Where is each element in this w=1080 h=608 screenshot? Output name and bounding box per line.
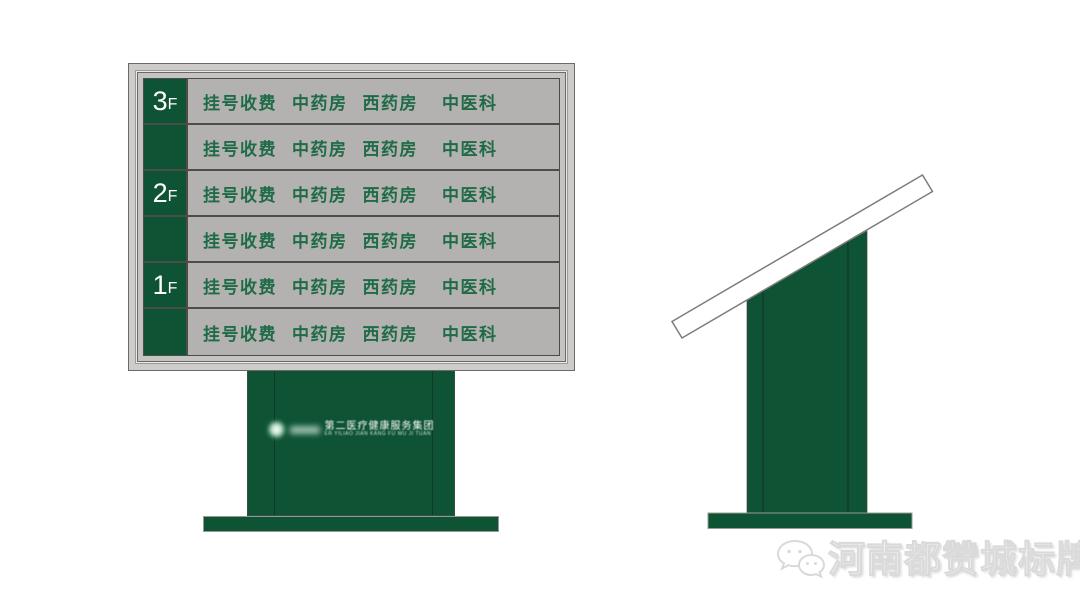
directory-row: 3F挂号收费中药房西药房中医科	[144, 79, 559, 125]
floor-number: 1	[153, 272, 168, 299]
floor-suffix: F	[168, 281, 178, 297]
sign-panel-side	[672, 175, 933, 338]
department-label: 挂号收费	[203, 135, 277, 160]
row-departments: 挂号收费中药房西药房中医科	[188, 79, 498, 123]
floor-blank-cell	[144, 309, 188, 355]
directory-rows: 3F挂号收费中药房西药房中医科挂号收费中药房西药房中医科2F挂号收费中药房西药房…	[143, 78, 560, 356]
department-label: 中药房	[292, 135, 348, 160]
department-label: 中医科	[442, 89, 498, 114]
department-label: 西药房	[363, 135, 419, 160]
hospital-group-logo: 第二医疗健康服务集团 ER YILIAO JIAN KANG FU WU JI …	[248, 421, 454, 438]
pedestal-front: 第二医疗健康服务集团 ER YILIAO JIAN KANG FU WU JI …	[247, 360, 455, 516]
emblem-icon	[268, 421, 285, 438]
row-departments: 挂号收费中药房西药房中医科	[188, 263, 498, 307]
department-label: 中医科	[442, 181, 498, 206]
directory-row: 挂号收费中药房西药房中医科	[144, 309, 559, 355]
board-frame-groove: 3F挂号收费中药房西药房中医科挂号收费中药房西药房中医科2F挂号收费中药房西药房…	[135, 70, 568, 364]
department-label: 西药房	[363, 273, 419, 298]
floor-label-cell: 3F	[144, 79, 188, 123]
pedestal-side	[747, 231, 867, 513]
directory-row: 挂号收费中药房西药房中医科	[144, 217, 559, 263]
logo-blurred-prefix	[290, 426, 320, 434]
watermark: 河南都赞城标牌厂	[775, 537, 1080, 583]
directory-board-front: 3F挂号收费中药房西药房中医科挂号收费中药房西药房中医科2F挂号收费中药房西药房…	[128, 63, 575, 371]
department-label: 中药房	[292, 320, 348, 345]
board-inner-frame: 3F挂号收费中药房西药房中医科挂号收费中药房西药房中医科2F挂号收费中药房西药房…	[137, 72, 566, 362]
row-departments: 挂号收费中药房西药房中医科	[188, 171, 498, 215]
floor-blank-cell	[144, 217, 188, 261]
department-label: 中医科	[442, 273, 498, 298]
department-label: 挂号收费	[203, 181, 277, 206]
pedestal-seam-right	[432, 361, 433, 515]
watermark-text: 河南都赞城标牌厂	[828, 537, 1080, 583]
floor-number: 3	[153, 88, 168, 115]
floor-label-cell: 2F	[144, 171, 188, 215]
department-label: 西药房	[363, 227, 419, 252]
sign-design-canvas: 第二医疗健康服务集团 ER YILIAO JIAN KANG FU WU JI …	[0, 0, 1080, 608]
department-label: 中药房	[292, 273, 348, 298]
department-label: 挂号收费	[203, 273, 277, 298]
department-label: 中药房	[292, 89, 348, 114]
floor-blank-cell	[144, 125, 188, 169]
department-label: 西药房	[363, 320, 419, 345]
department-label: 中医科	[442, 227, 498, 252]
directory-row: 1F挂号收费中药房西药房中医科	[144, 263, 559, 309]
directory-row: 2F挂号收费中药房西药房中医科	[144, 171, 559, 217]
floor-suffix: F	[168, 189, 178, 205]
base-front	[203, 516, 499, 532]
floor-label-cell: 1F	[144, 263, 188, 307]
department-label: 挂号收费	[203, 227, 277, 252]
department-label: 中药房	[292, 227, 348, 252]
department-label: 中医科	[442, 135, 498, 160]
base-side	[708, 513, 912, 529]
department-label: 中医科	[442, 320, 498, 345]
row-departments: 挂号收费中药房西药房中医科	[188, 309, 498, 355]
row-departments: 挂号收费中药房西药房中医科	[188, 125, 498, 169]
logo-pinyin-text: ER YILIAO JIAN KANG FU WU JI TUAN	[325, 432, 435, 438]
floor-suffix: F	[168, 97, 178, 113]
row-departments: 挂号收费中药房西药房中医科	[188, 217, 498, 261]
department-label: 中药房	[292, 181, 348, 206]
directory-row: 挂号收费中药房西药房中医科	[144, 125, 559, 171]
floor-number: 2	[153, 180, 168, 207]
department-label: 挂号收费	[203, 320, 277, 345]
pedestal-seam-left	[274, 361, 275, 515]
department-label: 挂号收费	[203, 89, 277, 114]
wechat-icon	[775, 539, 825, 583]
department-label: 西药房	[363, 89, 419, 114]
department-label: 西药房	[363, 181, 419, 206]
logo-text: 第二医疗健康服务集团 ER YILIAO JIAN KANG FU WU JI …	[325, 421, 435, 438]
